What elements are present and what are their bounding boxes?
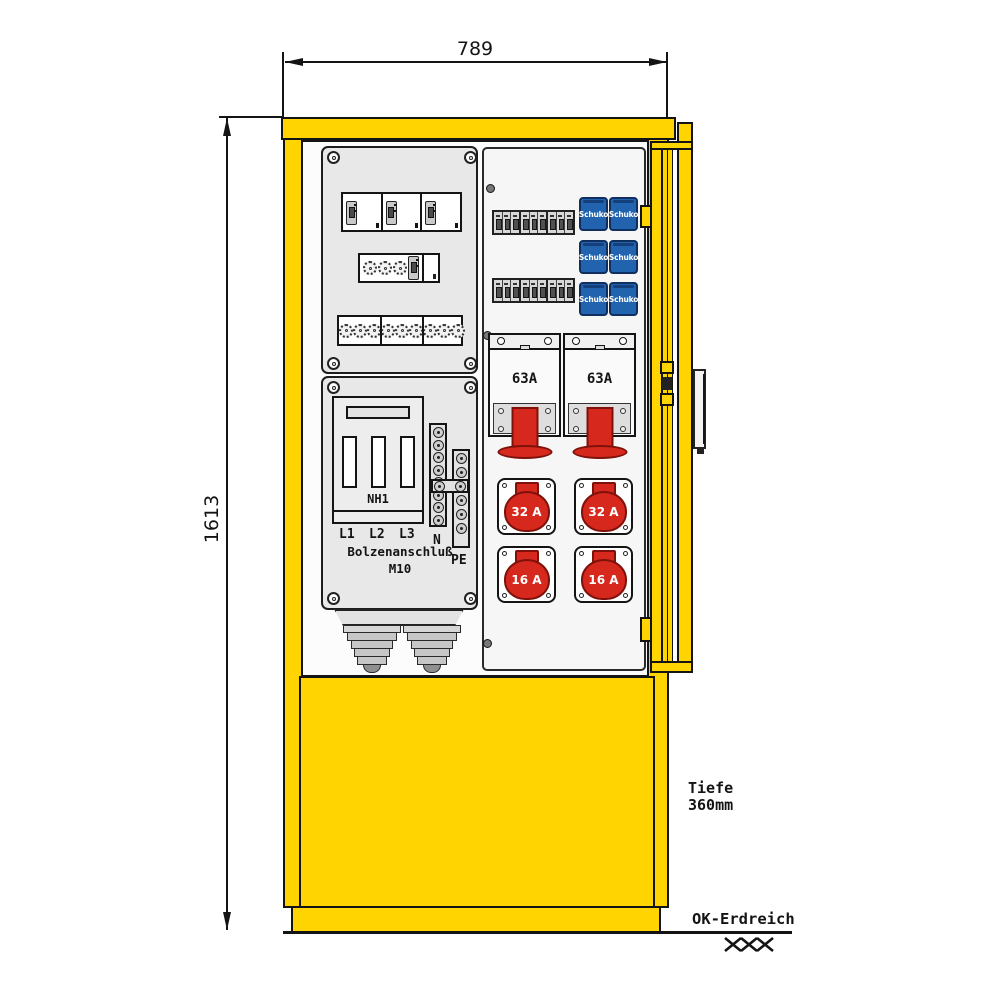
screw-icon (464, 357, 477, 370)
screw-icon (464, 381, 477, 394)
dimension-height-label: 1613 (201, 473, 223, 565)
terminal-icon (433, 427, 444, 438)
latch-icon (595, 345, 605, 350)
fuse-cap-icon (409, 324, 423, 338)
ground-hatch-icon (722, 936, 776, 953)
pe-label: PE (451, 553, 467, 568)
screw-icon (572, 337, 580, 345)
mcb-icon (494, 280, 503, 301)
breaker-cell (343, 194, 383, 230)
cee-socket-body: 16 A (504, 559, 550, 600)
pe-terminal-strip (452, 449, 470, 548)
ground-line (283, 931, 792, 934)
screw-icon (327, 357, 340, 370)
fuse-cap-icon (339, 324, 353, 338)
cee-63a-label: 63A (490, 371, 559, 387)
door-lock-latch (662, 377, 672, 390)
screw-icon (327, 592, 340, 605)
marker (433, 274, 436, 279)
door-handle-foot (697, 447, 704, 454)
mcb-icon (557, 280, 566, 301)
fuse-cap-icon (395, 324, 409, 338)
breaker-icon (346, 201, 357, 225)
terminal-icon (456, 509, 467, 520)
cee-socket-body: 32 A (504, 491, 550, 532)
breaker-icon (425, 201, 436, 225)
fuse-cap-icon (363, 261, 377, 275)
screw-icon (545, 408, 551, 414)
dimension-arrow-up-icon (223, 118, 231, 136)
terminal-icon (434, 481, 445, 492)
screw-icon (497, 337, 505, 345)
nh-fuse-base: NH1 (332, 396, 424, 524)
schuko-socket: Schuko (579, 197, 608, 231)
cee-63a-label: 63A (565, 371, 634, 387)
terminal-icon (433, 452, 444, 463)
breaker-icon (408, 256, 419, 280)
fuse-cap-icon (423, 324, 437, 338)
dimension-arrow-left-icon (285, 58, 303, 66)
terminal-bridge (431, 479, 469, 493)
mcb-icon (538, 212, 548, 233)
schuko-socket: Schuko (579, 240, 608, 274)
mcb-icon (557, 212, 566, 233)
neutral-terminal-strip (429, 423, 447, 527)
dimension-extension-line-left (282, 52, 284, 117)
nh-fuse-label: NH1 (334, 492, 422, 506)
mcb-icon (511, 212, 521, 233)
dimension-arrow-right-icon (649, 58, 667, 66)
divider (422, 317, 424, 344)
nh-fuse-slot (342, 436, 357, 488)
schuko-socket: Schuko (609, 240, 638, 274)
phase-label-l2: L2 (369, 527, 385, 542)
mcb-icon (521, 212, 530, 233)
cable-gland (342, 625, 402, 673)
base-plinth (291, 906, 661, 933)
divider (334, 510, 422, 512)
cee-socket-body: 16 A (581, 559, 627, 600)
screw-icon (464, 151, 477, 164)
door-outer-panel (677, 122, 693, 673)
breaker-cell (383, 194, 423, 230)
fuse-cap-icon (437, 324, 451, 338)
screw-icon (545, 426, 551, 432)
dimension-width-line (285, 61, 667, 63)
screw-icon (464, 592, 477, 605)
schuko-socket: Schuko (579, 282, 608, 316)
mcb-icon (503, 280, 512, 301)
door-top-rail (650, 141, 693, 150)
phase-label-l1: L1 (339, 527, 355, 542)
main-breaker-row (341, 192, 462, 232)
screw-icon (486, 184, 495, 193)
cee-socket-32a: 32 A (574, 478, 633, 535)
door-panel (650, 141, 663, 672)
mcb-icon (503, 212, 512, 233)
nh-fuse-slot (371, 436, 386, 488)
cee-socket-16a: 16 A (574, 546, 633, 603)
cee-socket-body: 32 A (581, 491, 627, 532)
screw-icon (483, 639, 492, 648)
mcb-row (492, 210, 575, 235)
mcb-icon (530, 280, 539, 301)
screw-icon (327, 151, 340, 164)
terminal-icon (433, 465, 444, 476)
breaker-cell (422, 194, 460, 230)
mcb-icon (538, 280, 548, 301)
fuse-cap-icon (353, 324, 367, 338)
door-lock (660, 393, 674, 406)
breaker-icon (386, 201, 397, 225)
door-handle-line (703, 374, 705, 444)
terminal-icon (433, 515, 444, 526)
schuko-socket: Schuko (609, 282, 638, 316)
depth-label-line1: Tiefe (688, 780, 733, 797)
cable-gland (402, 625, 462, 673)
cee-63a-unit: 63A (488, 333, 561, 437)
nh-fuse-slot (400, 436, 415, 488)
screw-icon (619, 337, 627, 345)
screw-icon (620, 408, 626, 414)
terminal-icon (456, 453, 467, 464)
mcb-icon (530, 212, 539, 233)
screw-icon (498, 408, 504, 414)
nh-fuse-top-bar (346, 406, 410, 419)
dimension-arrow-down-icon (223, 912, 231, 930)
technical-drawing: 789 1613 (0, 0, 1000, 1000)
dimension-width-label: 789 (430, 38, 520, 60)
cee-socket-32a: 32 A (497, 478, 556, 535)
schuko-socket: Schuko (609, 197, 638, 231)
terminal-icon (433, 502, 444, 513)
latch-icon (520, 345, 530, 350)
mcb-icon (521, 280, 530, 301)
depth-label-line2: 360mm (688, 797, 733, 814)
mcb-icon (494, 212, 503, 233)
cee-socket-16a: 16 A (497, 546, 556, 603)
mcb-icon (548, 280, 557, 301)
door-edge (667, 141, 673, 672)
mcb-icon (565, 280, 573, 301)
dimension-height-line (226, 118, 228, 930)
terminal-icon (456, 495, 467, 506)
door-lock (660, 361, 674, 374)
mcb-icon (511, 280, 521, 301)
divider (422, 255, 424, 281)
screw-icon (573, 426, 579, 432)
phase-label-l3: L3 (399, 527, 415, 542)
screw-icon (327, 381, 340, 394)
divider (380, 317, 382, 344)
fuse-cap-icon (393, 261, 407, 275)
neutral-label: N (433, 533, 441, 548)
mcb-icon (548, 212, 557, 233)
terminal-icon (456, 523, 467, 534)
fuse-cap-icon (378, 261, 392, 275)
screw-icon (573, 408, 579, 414)
fuse-cap-icon (367, 324, 381, 338)
mcb-icon (565, 212, 573, 233)
terminal-icon (455, 481, 466, 492)
fuse-row (337, 315, 463, 346)
lower-front-panel (299, 676, 655, 908)
cee-63a-flange-icon (572, 445, 627, 459)
panel-flange (334, 609, 464, 626)
fuse-breaker-row (358, 253, 440, 283)
screw-icon (498, 426, 504, 432)
mcb-row (492, 278, 575, 303)
fuse-cap-icon (381, 324, 395, 338)
cee-63a-flange-icon (497, 445, 552, 459)
screw-icon (544, 337, 552, 345)
terminal-icon (433, 440, 444, 451)
depth-label: Tiefe 360mm (688, 780, 733, 814)
cabinet-roof (281, 117, 676, 140)
ground-level-label: OK-Erdreich (692, 911, 795, 928)
fuse-cap-icon (451, 324, 465, 338)
door-bottom-rail (650, 661, 693, 673)
screw-icon (620, 426, 626, 432)
cee-63a-unit: 63A (563, 333, 636, 437)
terminal-icon (456, 467, 467, 478)
